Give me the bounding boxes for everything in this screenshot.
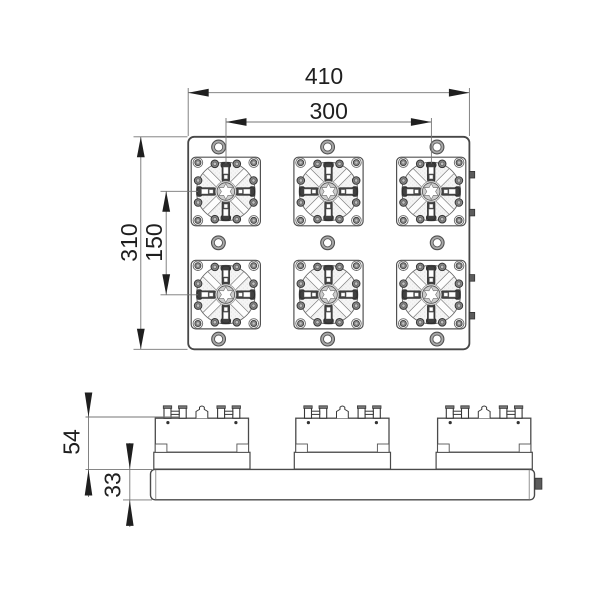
svg-text:310: 310 bbox=[116, 223, 142, 261]
svg-text:410: 410 bbox=[305, 63, 343, 89]
svg-text:300: 300 bbox=[310, 98, 348, 124]
svg-text:150: 150 bbox=[141, 223, 167, 261]
svg-text:33: 33 bbox=[99, 472, 125, 498]
svg-text:54: 54 bbox=[59, 429, 85, 455]
